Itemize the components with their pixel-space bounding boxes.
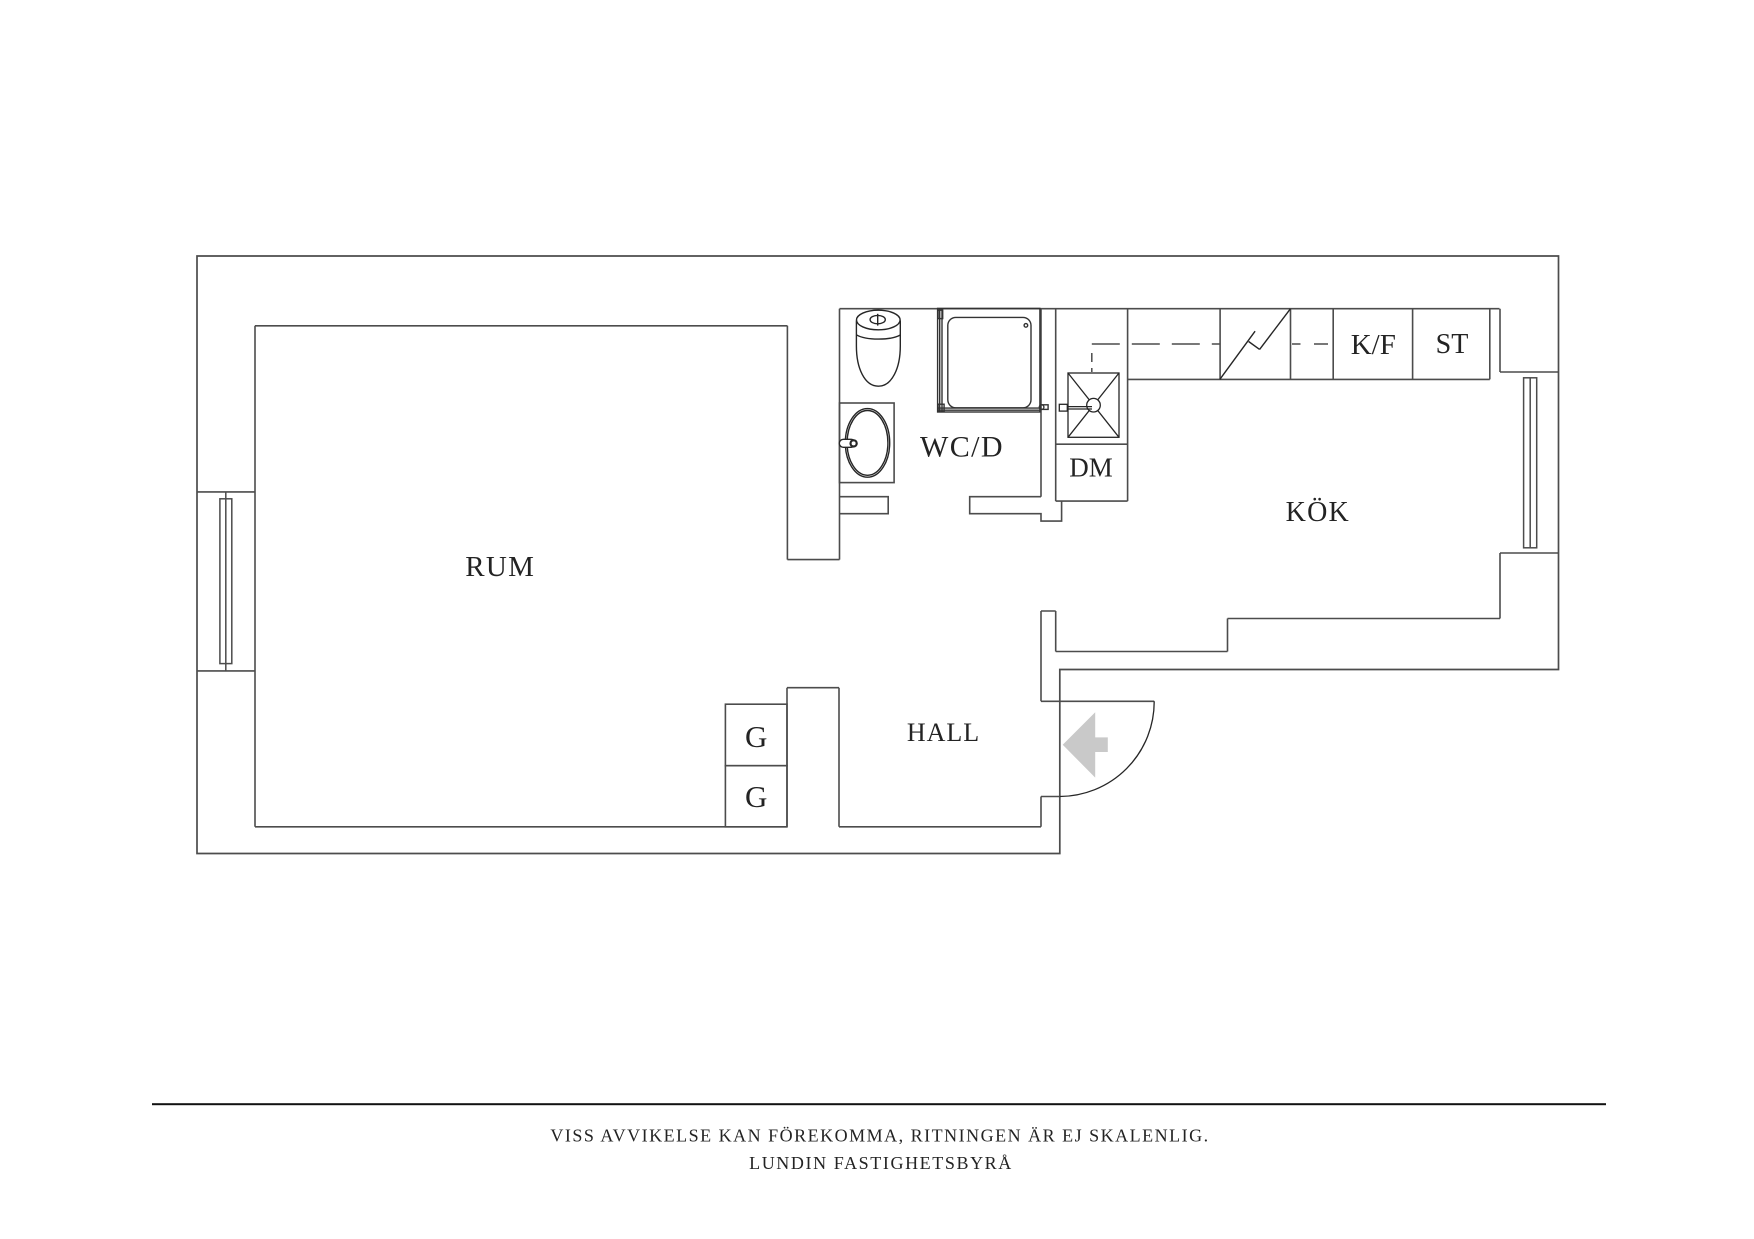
svg-text:RUM: RUM [465, 551, 535, 583]
svg-text:DM: DM [1069, 453, 1113, 483]
svg-text:G: G [745, 779, 767, 814]
svg-text:ST: ST [1436, 329, 1469, 360]
svg-text:G: G [745, 719, 767, 754]
svg-text:HALL: HALL [907, 718, 980, 747]
svg-text:VISS AVVIKELSE KAN FÖREKOMMA,: VISS AVVIKELSE KAN FÖREKOMMA, RITNINGEN … [550, 1126, 1209, 1146]
svg-text:K/F: K/F [1351, 329, 1396, 361]
svg-text:KÖK: KÖK [1286, 497, 1350, 528]
svg-text:LUNDIN FASTIGHETSBYRÅ: LUNDIN FASTIGHETSBYRÅ [749, 1153, 1013, 1173]
svg-text:WC/D: WC/D [920, 430, 1004, 463]
